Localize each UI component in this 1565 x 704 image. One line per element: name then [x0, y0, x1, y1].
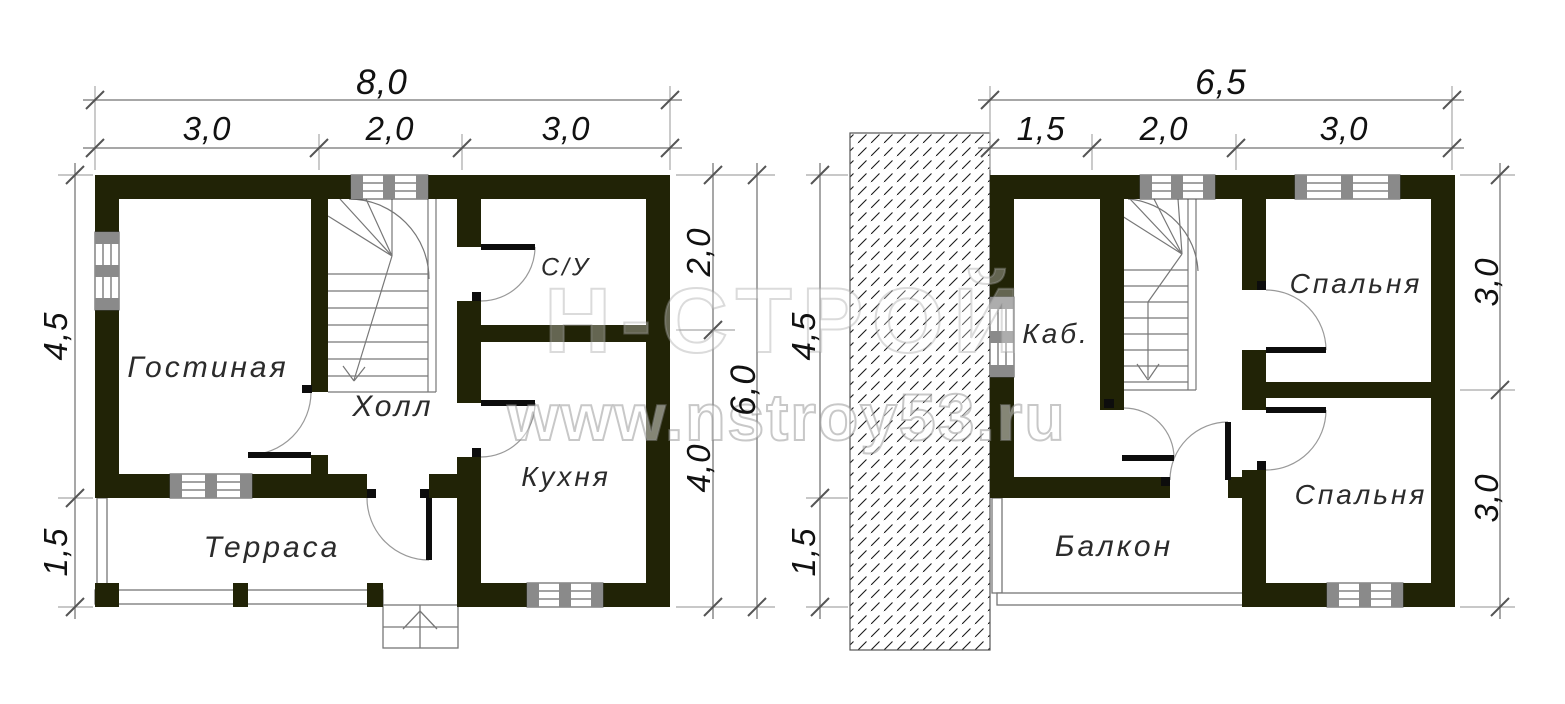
dim-f2-left-2: 1,5: [785, 528, 823, 577]
dim-f2-right-seg-1: 3,0: [1468, 258, 1506, 307]
room-label-hall: Холл: [352, 390, 433, 424]
dim-f2-top-total: 6,5: [1195, 63, 1247, 103]
room-label-bedroom-top: Спальня: [1290, 268, 1423, 300]
dim-f1-right-total: 6,0: [724, 364, 764, 416]
dim-f1-left-1: 4,5: [37, 312, 75, 361]
room-label-kitchen: Кухня: [521, 461, 611, 493]
dim-f2-top-seg-2: 2,0: [1140, 110, 1189, 148]
dim-f1-top-seg-3: 3,0: [542, 110, 591, 148]
dim-f2-right-seg-2: 3,0: [1468, 474, 1506, 523]
floor-plan-canvas: Н-СТРОЙ www.nstroy53.ru Гостиная Холл С/…: [0, 0, 1565, 704]
room-label-terrace: Терраса: [204, 531, 341, 565]
dim-f2-left-1: 4,5: [785, 312, 823, 361]
room-label-balcony: Балкон: [1055, 530, 1173, 564]
plan-labels: Гостиная Холл С/У Кухня Терраса 8,0 3,0 …: [0, 0, 1565, 704]
room-label-living-room: Гостиная: [127, 351, 288, 385]
dim-f1-top-seg-2: 2,0: [366, 110, 415, 148]
room-label-bedroom-bottom: Спальня: [1295, 479, 1428, 511]
dim-f1-right-seg-1: 2,0: [680, 228, 718, 277]
room-label-office: Каб.: [1022, 318, 1090, 350]
room-label-bathroom: С/У: [541, 254, 591, 283]
dim-f2-top-seg-1: 1,5: [1017, 110, 1066, 148]
dim-f2-top-seg-3: 3,0: [1320, 110, 1369, 148]
dim-f1-right-seg-2: 4,0: [680, 444, 718, 493]
dim-f1-top-total: 8,0: [356, 63, 408, 103]
dim-f1-top-seg-1: 3,0: [183, 110, 232, 148]
dim-f1-left-2: 1,5: [37, 528, 75, 577]
